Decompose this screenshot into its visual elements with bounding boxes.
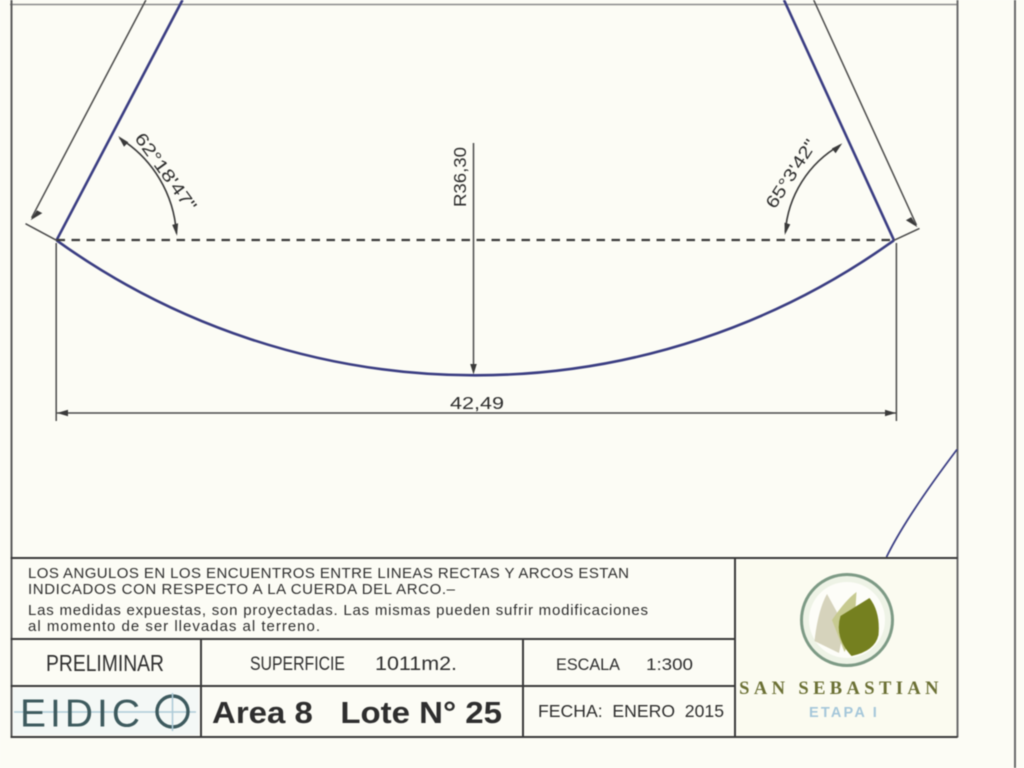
- svg-text:ESCALA: ESCALA: [556, 655, 621, 674]
- svg-text:Area 8 Lote N° 25: Area 8 Lote N° 25: [212, 695, 502, 730]
- svg-text:LOS ANGULOS EN LOS ENCUENTROS: LOS ANGULOS EN LOS ENCUENTROS ENTRE LINE…: [28, 565, 629, 582]
- svg-text:EIDIC: EIDIC: [20, 693, 144, 736]
- svg-text:ETAPA I: ETAPA I: [809, 705, 879, 721]
- svg-text:PRELIMINAR: PRELIMINAR: [46, 650, 164, 676]
- svg-text:FECHA: ENERO 2015: FECHA: ENERO 2015: [538, 701, 724, 721]
- svg-text:al momento de ser llevadas al: al momento de ser llevadas al terreno.: [28, 618, 320, 635]
- svg-text:INDICADOS CON RESPECTO A LA CU: INDICADOS CON RESPECTO A LA CUERDA DEL A…: [28, 581, 456, 598]
- svg-text:1011m2.: 1011m2.: [375, 654, 457, 675]
- svg-text:Las medidas expuestas, son pro: Las medidas expuestas, son proyectadas. …: [28, 602, 648, 619]
- svg-text:1:300: 1:300: [646, 655, 693, 674]
- svg-text:SAN SEBASTIAN: SAN SEBASTIAN: [739, 679, 943, 699]
- svg-text:SUPERFICIE: SUPERFICIE: [250, 654, 345, 675]
- svg-text:42,49: 42,49: [450, 393, 504, 413]
- svg-text:R36,30: R36,30: [450, 147, 470, 207]
